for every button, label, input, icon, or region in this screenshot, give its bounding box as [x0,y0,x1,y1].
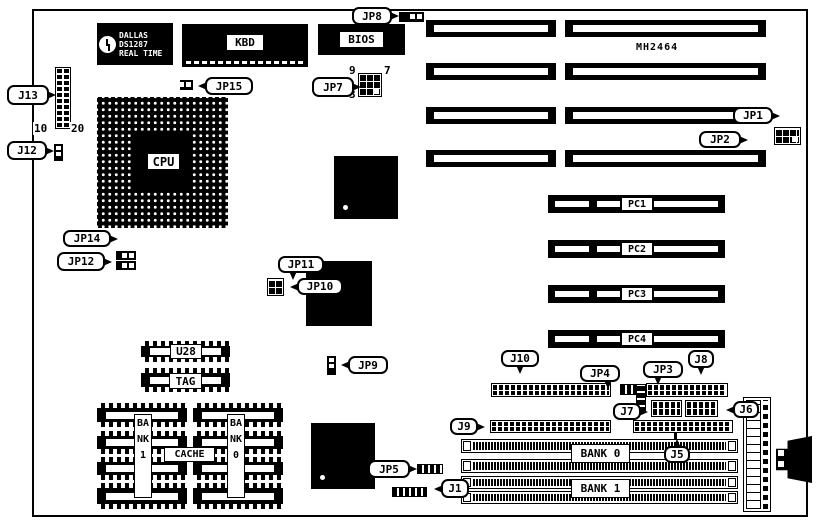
pc3-slot-label: PC3 [621,287,653,301]
header-pins [493,385,609,395]
callout-jp12: JP12 [57,252,105,271]
motherboard-diagram: DALLAS DS1287 REAL TIME KBD BIOS JP8 MH2… [0,0,816,527]
header-pins [635,422,731,431]
slot-opening [654,246,718,252]
pc2-slot-label: PC2 [621,242,653,256]
pc-slot: PC4 [548,330,725,348]
callout-j13: J13 [7,85,49,105]
kbd-pin-row [186,61,304,64]
slot-opening [597,201,620,207]
isa-slot-opening [573,155,758,162]
isa-slot-opening [434,112,548,119]
jumper-j12 [54,144,63,161]
jp7-pin-9: 9 [348,64,357,77]
callout-jp11: JP11 [278,256,324,273]
power-pins [763,400,768,509]
slot-opening [597,246,620,252]
pc4-slot-label: PC4 [621,332,653,346]
jumper-block-jp1-jp2 [774,127,801,145]
qfp-chip [311,423,375,489]
dallas-model: DS1287 [119,40,148,49]
header-j8 [646,383,728,397]
slot-opening [654,336,718,342]
jumper-jp12 [116,261,136,270]
isa-slot [426,150,556,167]
header-j13 [55,67,71,129]
cache-bank0-label: BANK0 [227,414,245,498]
callout-jp5: JP5 [368,460,410,478]
slot-opening [654,201,718,207]
board-part-number: MH2464 [636,42,678,53]
callout-j1: J1 [441,479,469,498]
callout-j9: J9 [450,418,478,435]
isa-slot-opening [573,25,758,32]
jumper-cells [269,280,282,294]
header-j9 [490,420,611,433]
din-pin [778,450,784,456]
jumper-jp8 [399,12,424,22]
jumper-jp9 [327,356,336,375]
callout-jp8: JP8 [352,7,392,25]
slot-opening [597,336,620,342]
jumper-block-jp7 [358,73,382,97]
pc-slot: PC3 [548,285,725,303]
din-pin [778,461,784,467]
slot-opening [555,336,589,342]
u28-label: U28 [170,344,202,359]
bios-chip-label: BIOS [339,31,384,48]
callout-jp15: JP15 [205,77,253,95]
callout-jp9: JP9 [348,356,388,374]
header-j1 [392,487,427,497]
bank1-simm-label: BANK 1 [571,479,630,498]
isa-slot [565,20,766,37]
callout-jp1: JP1 [733,107,773,124]
isa-slot [426,20,556,37]
isa-slot [565,150,766,167]
qfp-chip [334,156,398,219]
header-pins [57,69,69,127]
isa-slot [426,63,556,80]
dallas-chip-text: DALLAS DS1287 REAL TIME [119,31,162,58]
clock-icon [99,36,116,53]
callout-jp3: JP3 [643,361,683,378]
tag-label: TAG [169,373,202,389]
callout-j7: J7 [613,403,641,420]
callout-jp14: JP14 [63,230,111,247]
isa-slot-opening [434,68,548,75]
simm-clip [728,478,736,487]
simm-clip [463,461,471,471]
simm-contacts [473,462,726,470]
callout-j8: J8 [688,350,714,368]
callout-jp7: JP7 [312,77,354,97]
open-pin [373,88,379,94]
isa-slot-opening [434,25,548,32]
pin1-dot [320,475,325,480]
callout-j5: J5 [664,446,690,463]
isa-slot [565,63,766,80]
isa-slot [426,107,556,124]
isa-slot-opening [434,155,548,162]
slot-opening [555,291,589,297]
header-pins [648,385,726,395]
pin1-dot [343,205,348,210]
dallas-brand: DALLAS [119,31,148,40]
slot-opening [654,291,718,297]
cache-label: CACHE [164,447,215,462]
header-pins [653,402,680,415]
simm-clip [463,441,471,451]
j13-pin-20: 20 [70,122,85,135]
header-j5 [633,420,733,433]
simm-clip [728,493,736,502]
jumper-jp5 [417,464,443,474]
pc1-slot-label: PC1 [621,197,653,211]
header-j6 [685,400,718,417]
callout-j6: J6 [733,401,759,418]
jumper-jp15 [180,80,193,90]
jumper-block-jp10-jp11 [267,278,284,296]
j13-pin-10: 10 [33,122,48,135]
slot-opening [597,291,620,297]
callout-jp4: JP4 [580,365,620,382]
callout-j10: J10 [501,350,539,367]
dallas-sub: REAL TIME [119,49,162,58]
slot-opening [555,201,589,207]
header-pins [687,402,716,415]
callout-j12: J12 [7,141,47,160]
dallas-rtc-chip: DALLAS DS1287 REAL TIME [97,23,173,65]
pc-slot: PC2 [548,240,725,258]
callout-jp10: JP10 [297,278,343,295]
header-j7 [651,400,682,417]
pc-slot: PC1 [548,195,725,213]
simm-clip [728,441,736,451]
cache-bank1-label: BANK1 [134,414,152,498]
jp7-pin-7: 7 [383,64,392,77]
jumper-jp14 [116,251,136,260]
isa-slot-opening [573,68,758,75]
cpu-label: CPU [147,153,180,170]
callout-jp2: JP2 [699,131,741,148]
open-pin [792,136,798,142]
header-j10 [491,383,611,397]
slot-opening [555,246,589,252]
bank0-simm-label: BANK 0 [571,444,630,463]
isa-slot-opening [573,112,758,119]
simm-clip [728,461,736,471]
kbd-chip-label: KBD [226,34,264,51]
header-pins [492,422,609,431]
